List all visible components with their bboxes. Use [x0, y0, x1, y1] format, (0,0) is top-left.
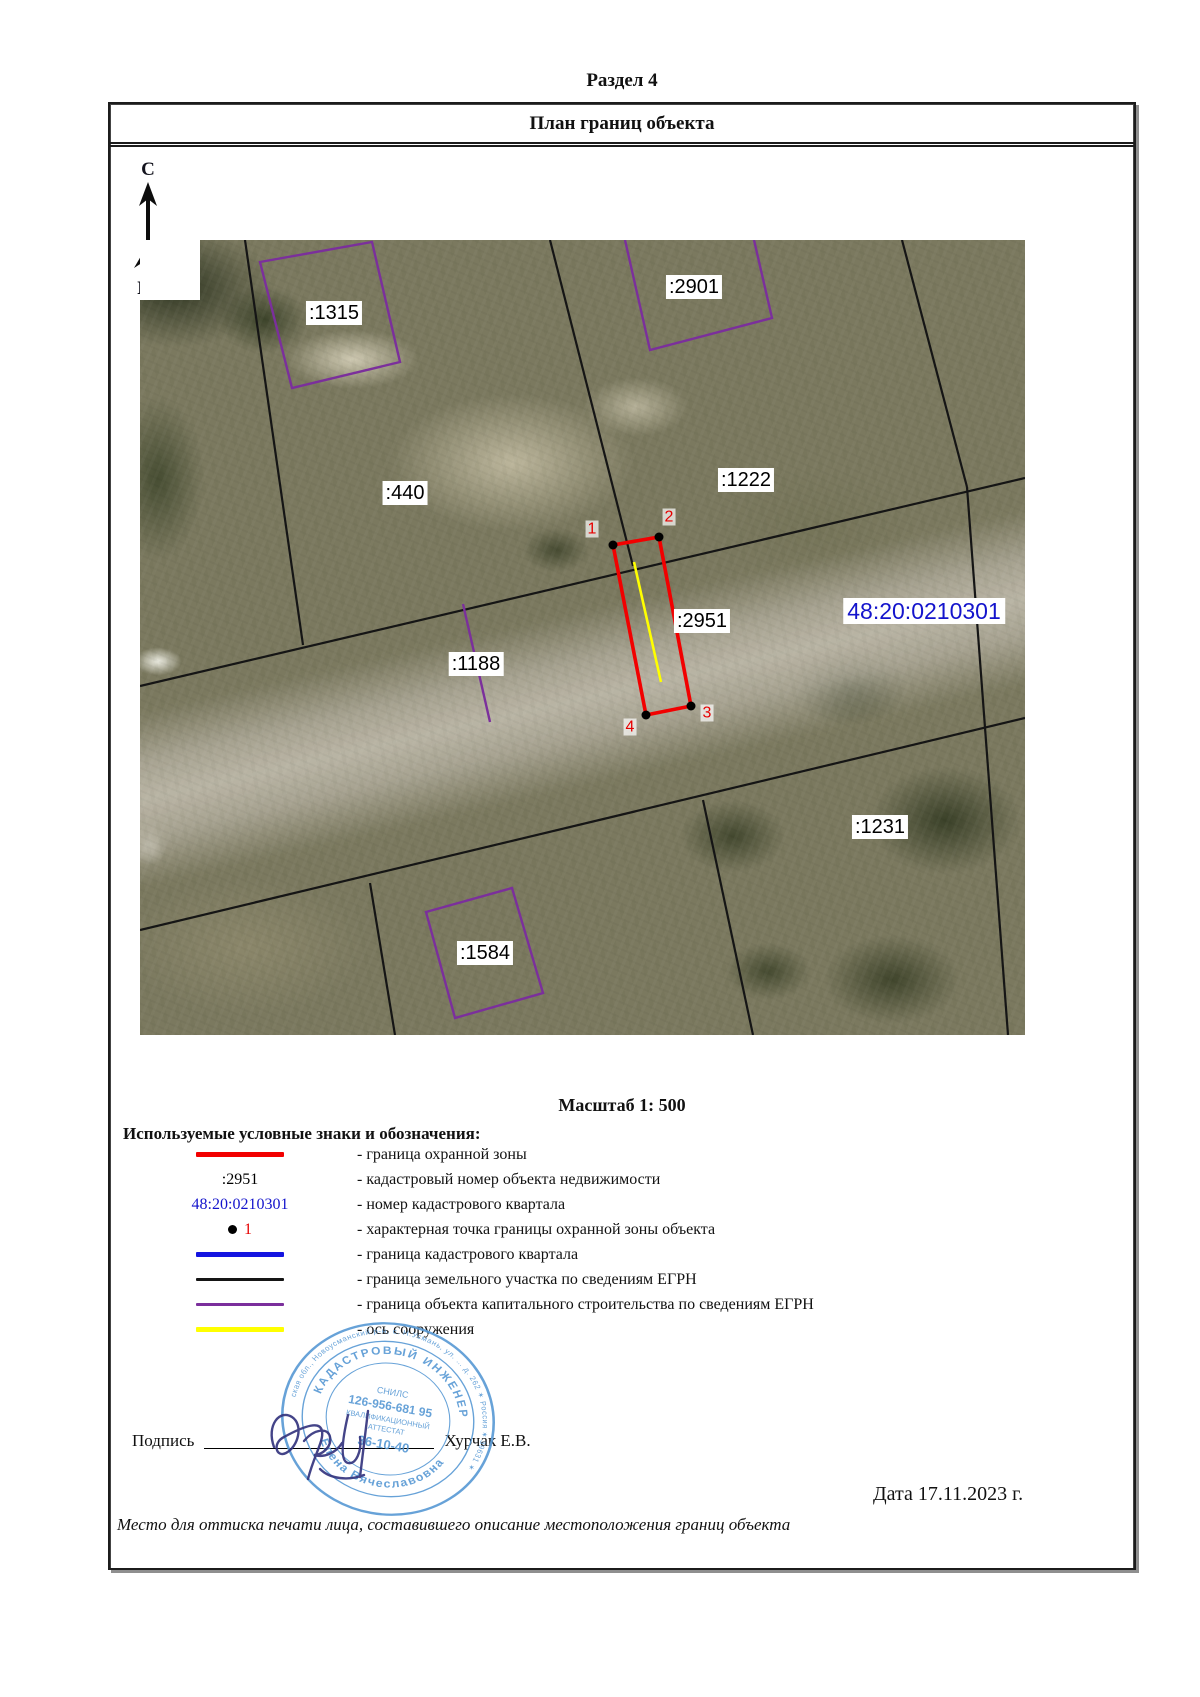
handwritten-signature	[256, 1381, 416, 1496]
legend-symbol-line-blue	[150, 1252, 330, 1257]
parcel-label: :2951	[674, 609, 730, 633]
legend-label: - граница охранной зоны	[357, 1146, 527, 1164]
legend-symbol-line-red	[150, 1152, 330, 1157]
legend-item: - граница охранной зоны	[110, 1142, 1134, 1167]
legend-symbol-text-blue: 48:20:0210301	[150, 1196, 330, 1214]
section-title: Раздел 4	[108, 70, 1136, 92]
legend-symbol-line-black	[150, 1278, 330, 1281]
parcel-label: :1231	[852, 815, 908, 839]
plan-frame: План границ объекта С Ю :1315:2901:440:1	[108, 102, 1136, 1570]
boundary-point-label: 1	[586, 521, 599, 538]
document-page: Раздел 4 План границ объекта С Ю	[0, 0, 1200, 1697]
parcel-label: :440	[383, 481, 428, 505]
parcel-label: :1222	[718, 468, 774, 492]
boundary-point-label: 2	[663, 509, 676, 526]
legend-item: 48:20:0210301- номер кадастрового кварта…	[110, 1192, 1134, 1217]
legend-item: :2951- кадастровый номер объекта недвижи…	[110, 1167, 1134, 1192]
satellite-map: :1315:2901:440:1222:1188:2951:1231:15844…	[140, 240, 1025, 1035]
signature-label: Подпись	[132, 1431, 194, 1451]
legend-symbol-text-black: :2951	[150, 1171, 330, 1189]
parcel-label: :1315	[306, 301, 362, 325]
legend-symbol-line-purple	[150, 1303, 330, 1307]
legend-label: - кадастровый номер объекта недвижимости	[357, 1171, 660, 1189]
legend-item: - граница кадастрового квартала	[110, 1242, 1134, 1267]
plan-body: С Ю :1315:2901:440:1222:1188:2951:1231:1…	[110, 147, 1134, 1563]
legend-heading: Используемые условные знаки и обозначени…	[123, 1124, 481, 1144]
legend-symbol-point: 1	[150, 1221, 330, 1239]
plan-title: План границ объекта	[110, 104, 1134, 147]
footer-note: Место для оттиска печати лица, составивш…	[117, 1515, 790, 1535]
compass-north-label: С	[126, 160, 170, 180]
date-text: Дата 17.11.2023 г.	[873, 1483, 1023, 1506]
legend-label: - характерная точка границы охранной зон…	[357, 1221, 715, 1239]
legend-label: - граница земельного участка по сведения…	[357, 1271, 697, 1289]
legend-label: - граница кадастрового квартала	[357, 1246, 578, 1264]
legend-item: 1- характерная точка границы охранной зо…	[110, 1217, 1134, 1242]
legend-item: - граница земельного участка по сведения…	[110, 1267, 1134, 1292]
parcel-label: :1584	[457, 941, 513, 965]
legend-label: - номер кадастрового квартала	[357, 1196, 565, 1214]
boundaries-overlay	[140, 240, 1025, 1035]
parcel-label: :1188	[449, 652, 504, 676]
parcel-label: :2901	[666, 275, 722, 299]
scale-text: Масштаб 1: 500	[110, 1095, 1134, 1116]
boundary-point-label: 4	[624, 719, 637, 736]
boundary-point-label: 3	[701, 705, 714, 722]
cadastral-quarter-label: 48:20:0210301	[843, 598, 1005, 624]
